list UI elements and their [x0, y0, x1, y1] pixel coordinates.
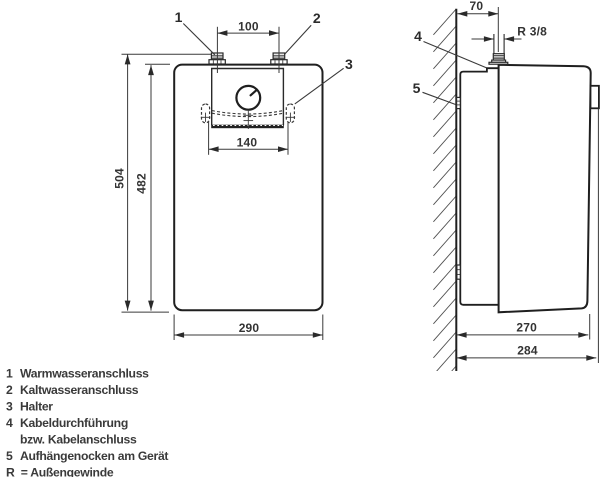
svg-text:3: 3	[6, 399, 13, 413]
svg-text:Aufhängenocken am Gerät: Aufhängenocken am Gerät	[20, 449, 168, 463]
svg-text:270: 270	[516, 321, 537, 335]
svg-text:Warmwasseranschluss: Warmwasseranschluss	[20, 366, 149, 380]
svg-text:3: 3	[345, 56, 353, 72]
svg-text:2: 2	[313, 10, 321, 26]
svg-text:100: 100	[238, 20, 259, 34]
svg-text:R: R	[6, 466, 15, 477]
svg-text:1: 1	[6, 366, 13, 380]
svg-text:= Außengewinde: = Außengewinde	[21, 466, 114, 477]
svg-text:70: 70	[470, 0, 484, 13]
svg-text:5: 5	[413, 80, 421, 96]
svg-text:Halter: Halter	[20, 399, 53, 413]
svg-text:Kabeldurchführung: Kabeldurchführung	[20, 416, 128, 430]
svg-text:5: 5	[6, 449, 13, 463]
svg-text:504: 504	[113, 168, 127, 189]
svg-text:Kaltwasseranschluss: Kaltwasseranschluss	[20, 383, 139, 397]
svg-text:284: 284	[517, 344, 538, 358]
svg-text:1: 1	[175, 9, 183, 25]
svg-text:4: 4	[414, 28, 422, 44]
svg-text:bzw. Kabelanschluss: bzw. Kabelanschluss	[20, 433, 137, 447]
svg-text:R 3/8: R 3/8	[517, 24, 547, 38]
svg-text:482: 482	[134, 173, 148, 194]
svg-text:4: 4	[6, 416, 13, 430]
svg-text:290: 290	[239, 321, 260, 335]
svg-text:140: 140	[237, 135, 258, 149]
svg-text:2: 2	[6, 383, 13, 397]
